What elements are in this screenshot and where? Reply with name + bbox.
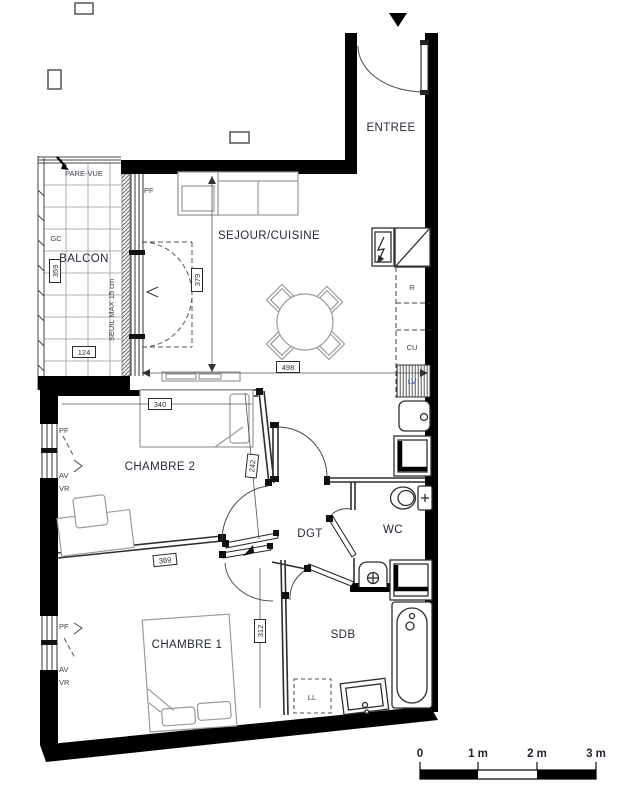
tall-cabinet-1 bbox=[394, 436, 431, 476]
dim-312: 312 bbox=[255, 620, 266, 643]
sdb-room: LL bbox=[294, 602, 432, 716]
pf-label-ch2: PF bbox=[59, 426, 69, 435]
svg-text:340: 340 bbox=[154, 400, 167, 409]
scale-2m: 2 m bbox=[527, 748, 547, 760]
french-doors-dashed bbox=[142, 242, 192, 347]
dgt-door-arc bbox=[278, 427, 327, 477]
room-label-sdb: SDB bbox=[331, 629, 356, 641]
wc-room bbox=[359, 486, 432, 600]
chambre2-window bbox=[41, 424, 57, 478]
pf-label-ch1: PF bbox=[59, 622, 69, 631]
dishwasher: LV bbox=[397, 365, 430, 397]
svg-text:124: 124 bbox=[78, 348, 91, 357]
svg-text:369: 369 bbox=[158, 555, 171, 565]
av-label-ch1: AV bbox=[59, 665, 68, 674]
toilet bbox=[391, 486, 433, 510]
svg-text:379: 379 bbox=[193, 274, 202, 287]
cooktop-label: CU bbox=[407, 343, 418, 352]
door-leaves-dgt bbox=[219, 530, 279, 558]
washing-machine-label: LL bbox=[308, 693, 316, 702]
floor-plan-page: PARE-VUE GC BALCON SEUIL MAX 15 cm bbox=[0, 0, 642, 800]
svg-text:312: 312 bbox=[256, 625, 265, 638]
vanity bbox=[340, 678, 389, 716]
room-label-wc: WC bbox=[383, 524, 403, 536]
scale-1m: 1 m bbox=[468, 748, 488, 760]
vr-label-ch2: VR bbox=[59, 484, 70, 493]
dim-369: 369 bbox=[153, 553, 177, 566]
dim-242: 242 bbox=[245, 454, 258, 478]
svg-text:359: 359 bbox=[51, 265, 60, 278]
vr-label-ch1: VR bbox=[59, 678, 70, 687]
svg-text:498: 498 bbox=[282, 363, 295, 372]
dim-124: 124 bbox=[73, 347, 96, 358]
wc-door bbox=[326, 509, 356, 557]
chambre1-door-arc bbox=[225, 563, 273, 601]
room-label-chambre2: CHAMBRE 2 bbox=[125, 461, 196, 473]
room-label-entree: ENTREE bbox=[366, 122, 415, 134]
entrance-arrow-icon bbox=[389, 13, 407, 27]
tall-cabinet-2 bbox=[390, 560, 432, 600]
reference-boxes bbox=[48, 3, 249, 143]
dishwasher-label: LV bbox=[408, 377, 417, 386]
washing-machine: LL bbox=[294, 679, 331, 713]
bathtub bbox=[392, 602, 432, 708]
chambre1-window bbox=[41, 616, 57, 670]
chambre1-bed bbox=[142, 614, 237, 732]
dim-379: 379 bbox=[192, 269, 203, 292]
gc-label: GC bbox=[50, 234, 62, 243]
scale-0: 0 bbox=[417, 748, 423, 760]
kitchen-shelf bbox=[395, 228, 430, 267]
pf-label-balcony: PF bbox=[144, 186, 154, 195]
sofa bbox=[178, 172, 298, 215]
scale-bar: 0 1 m 2 m 3 m bbox=[417, 748, 606, 779]
sdb-door bbox=[290, 564, 354, 600]
room-label-dgt: DGT bbox=[297, 528, 322, 540]
seuil-label: SEUIL MAX 15 cm bbox=[107, 279, 116, 341]
fridge-label: R bbox=[409, 283, 415, 292]
dining-table bbox=[266, 284, 344, 359]
svg-text:242: 242 bbox=[247, 459, 257, 472]
entry-door bbox=[358, 40, 429, 95]
dim-359: 359 bbox=[50, 260, 61, 283]
dim-340: 340 bbox=[149, 399, 172, 410]
room-label-sejour: SEJOUR/CUISINE bbox=[218, 230, 320, 242]
dim-498: 498 bbox=[277, 362, 300, 373]
pare-vue-label: PARE-VUE bbox=[65, 169, 103, 178]
kitchen-sink bbox=[399, 401, 430, 431]
av-label-ch2: AV bbox=[59, 471, 68, 480]
chambre2-desk bbox=[55, 492, 134, 556]
hand-basin bbox=[359, 562, 387, 587]
electrical-panel bbox=[372, 228, 394, 266]
kitchen: R CU LV bbox=[372, 228, 431, 476]
chambre2-door-arc bbox=[222, 486, 268, 541]
room-label-balcon: BALCON bbox=[59, 253, 109, 265]
room-label-chambre1: CHAMBRE 1 bbox=[152, 639, 223, 651]
floor-plan: PARE-VUE GC BALCON SEUIL MAX 15 cm bbox=[0, 0, 642, 800]
scale-3m: 3 m bbox=[586, 748, 606, 760]
